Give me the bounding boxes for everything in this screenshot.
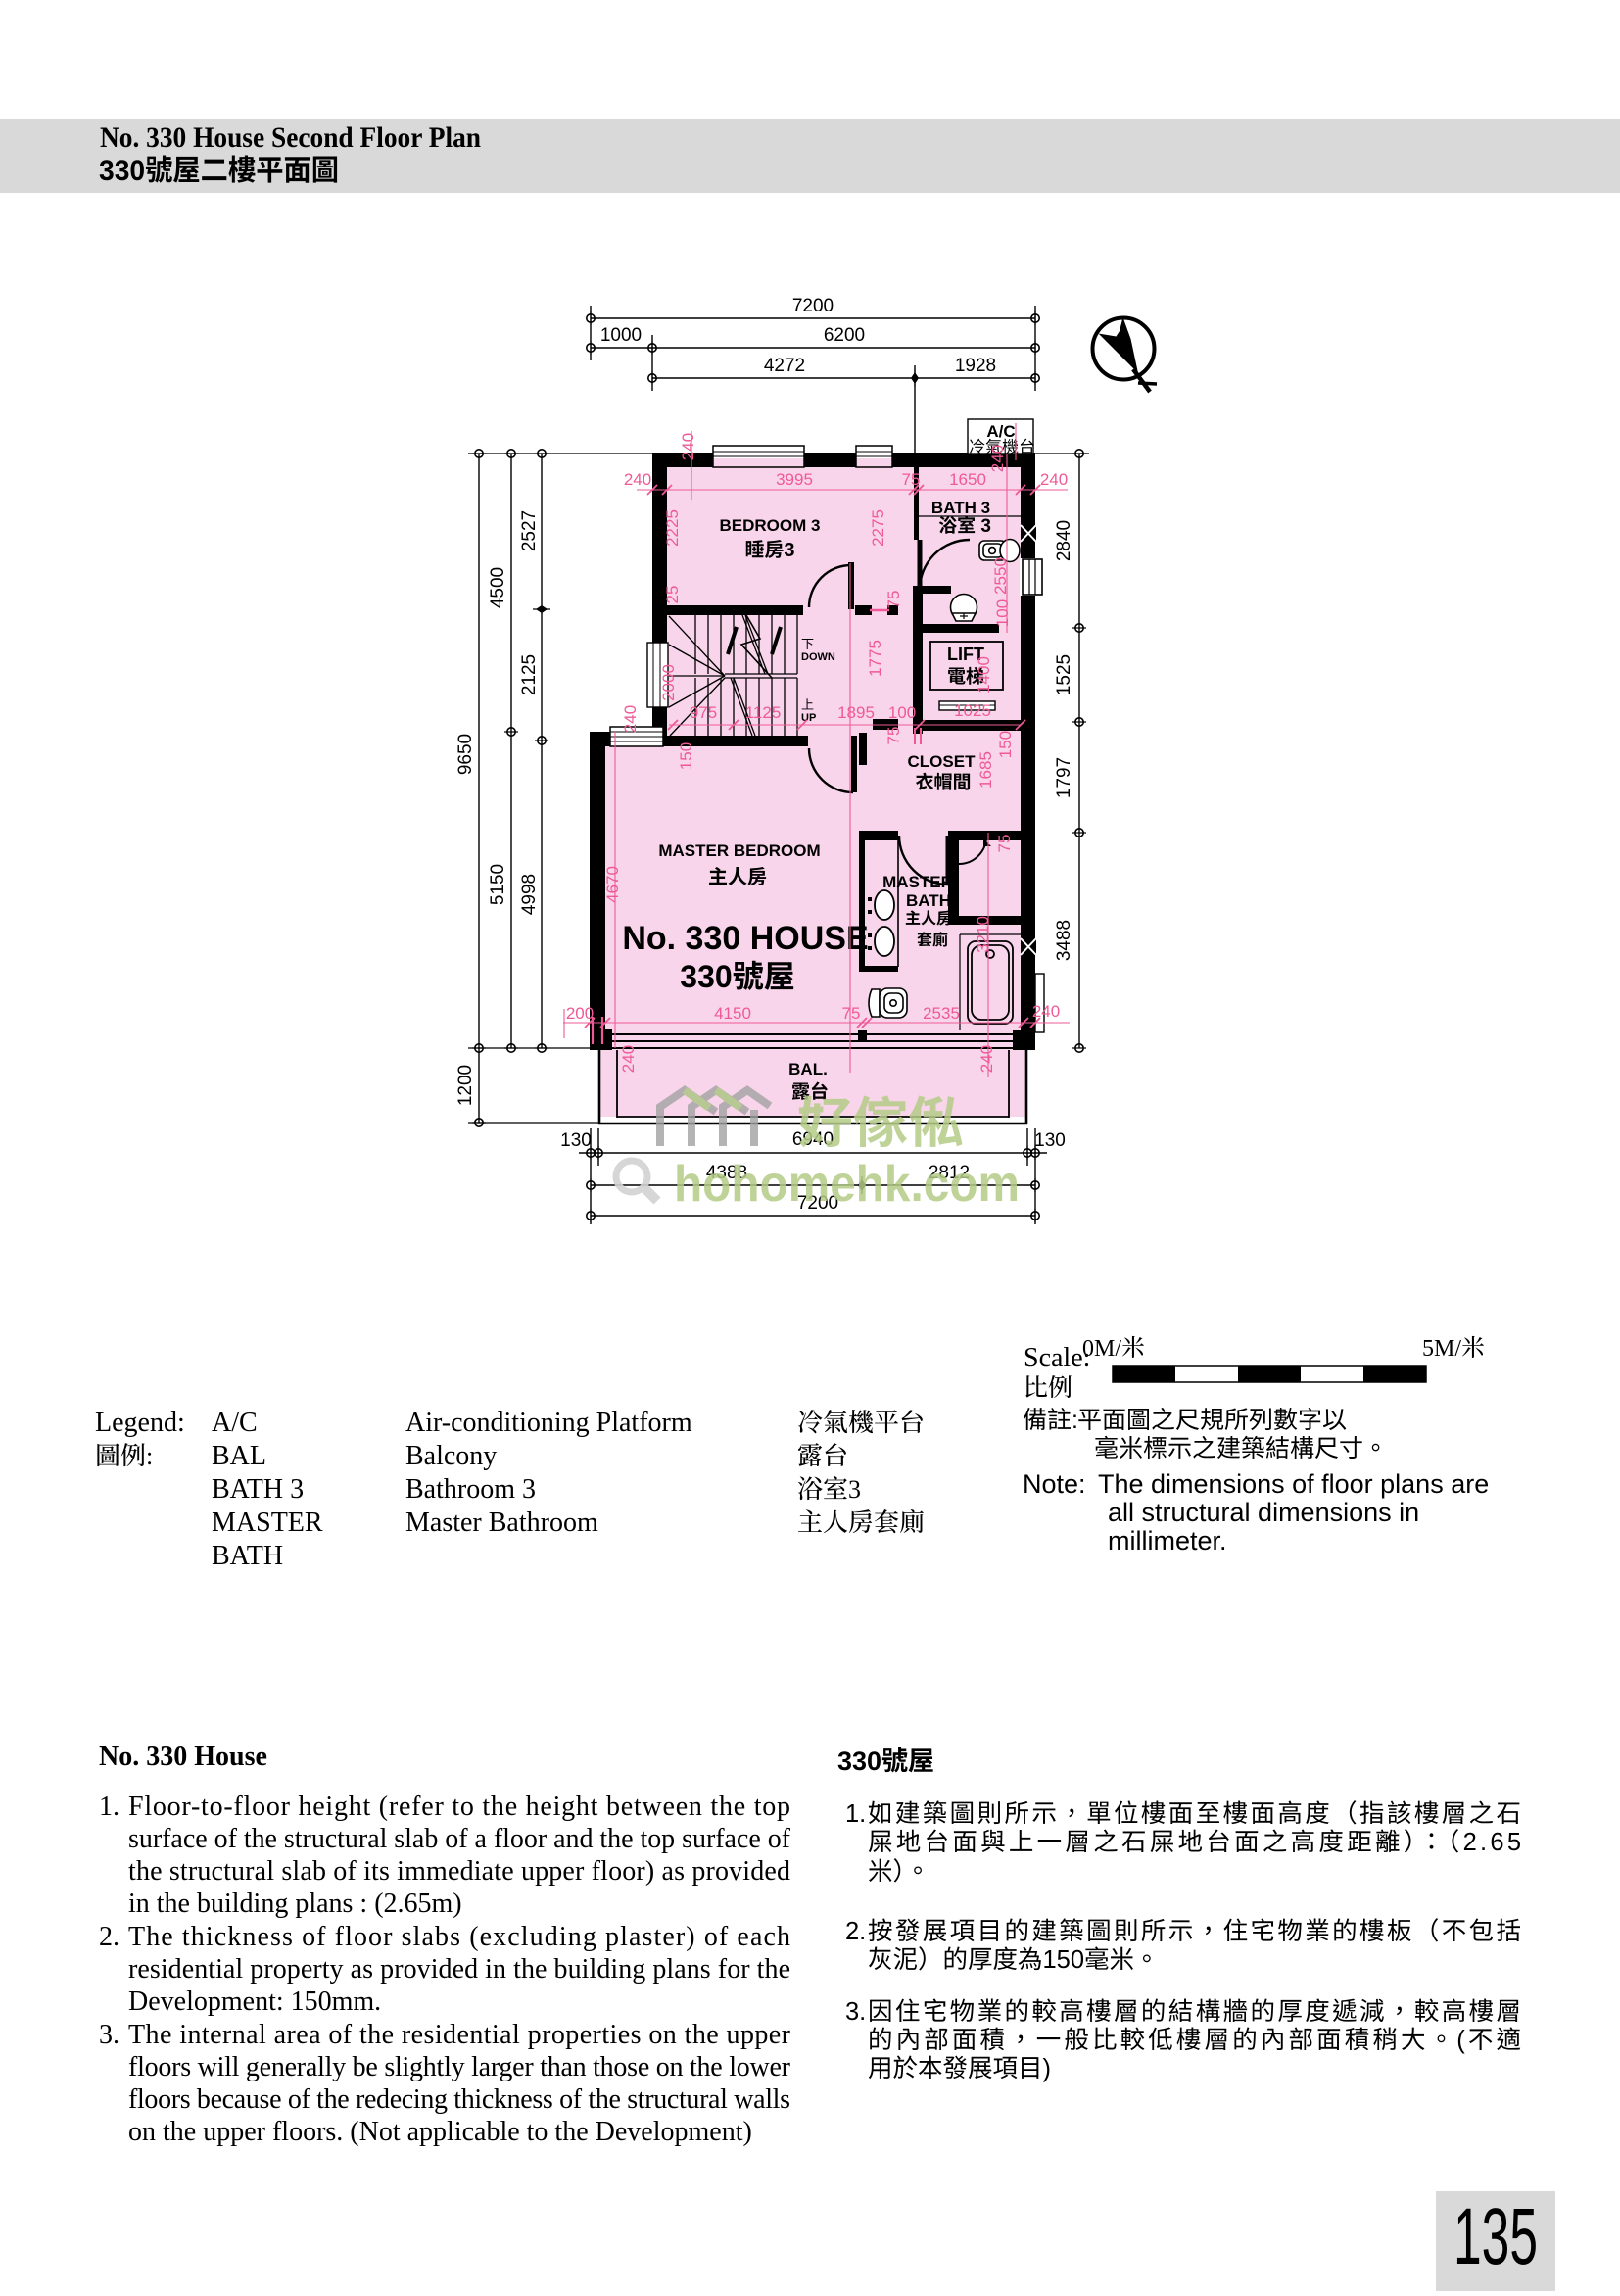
svg-text:MASTER: MASTER <box>882 873 953 891</box>
svg-text:5M/米: 5M/米 <box>1422 1335 1485 1362</box>
svg-text:1775: 1775 <box>866 640 884 677</box>
svg-text:4272: 4272 <box>764 356 805 376</box>
svg-text:floors because of the redecing: floors because of the redecing thickness… <box>128 2084 790 2115</box>
svg-text:0M/米: 0M/米 <box>1082 1335 1145 1362</box>
svg-text:1.: 1. <box>99 1792 119 1822</box>
svg-text:in the building plans : (2.65m: in the building plans : (2.65m) <box>128 1889 462 1919</box>
svg-text:1928: 1928 <box>955 356 996 376</box>
svg-text:MASTER BEDROOM: MASTER BEDROOM <box>658 841 820 860</box>
svg-text:2.: 2. <box>845 1918 866 1945</box>
svg-text:BAL: BAL <box>212 1441 266 1471</box>
svg-text:平面圖之尺規所列數字以: 平面圖之尺規所列數字以 <box>1077 1407 1347 1434</box>
svg-text:屎地台面與上一層之石屎地台面之高度距離）：（2.65: 屎地台面與上一層之石屎地台面之高度距離）：（2.65 <box>868 1829 1521 1856</box>
svg-text:BAL.: BAL. <box>788 1060 828 1078</box>
svg-text:UP: UP <box>801 712 816 724</box>
svg-text:75: 75 <box>902 470 921 489</box>
svg-text:2535: 2535 <box>923 1004 960 1023</box>
svg-text:主人房: 主人房 <box>905 910 952 928</box>
svg-text:BATH: BATH <box>212 1541 283 1571</box>
svg-text:BATH 3: BATH 3 <box>931 499 990 517</box>
svg-text:浴室3: 浴室3 <box>797 1475 861 1504</box>
svg-text:150: 150 <box>996 731 1015 758</box>
svg-text:the structural slab of its imm: the structural slab of its immediate upp… <box>128 1856 790 1887</box>
svg-text:的內部面積，一般比較低樓層的內部面積稍大。(不適: 的內部面積，一般比較低樓層的內部面積稍大。(不適 <box>868 2027 1521 2054</box>
svg-text:套廁: 套廁 <box>917 932 948 949</box>
svg-text:3488: 3488 <box>1054 920 1074 961</box>
svg-text:圖例:: 圖例: <box>95 1442 153 1470</box>
svg-text:浴室 3: 浴室 3 <box>938 515 991 537</box>
svg-text:Scale:: Scale: <box>1024 1343 1090 1373</box>
svg-text:1025: 1025 <box>954 701 991 720</box>
svg-text:1.: 1. <box>845 1800 866 1828</box>
svg-text:240: 240 <box>679 433 697 460</box>
svg-text:主人房套廁: 主人房套廁 <box>797 1508 925 1537</box>
svg-text:3.: 3. <box>99 2020 119 2050</box>
svg-text:冷氣機平台: 冷氣機平台 <box>797 1409 925 1437</box>
svg-text:上: 上 <box>801 697 814 712</box>
svg-text:240: 240 <box>1040 470 1068 489</box>
svg-text:3.: 3. <box>845 1998 866 2026</box>
svg-text:330號屋二樓平面圖: 330號屋二樓平面圖 <box>99 155 339 187</box>
svg-text:Balcony: Balcony <box>405 1441 497 1471</box>
svg-text:1895: 1895 <box>837 703 875 722</box>
svg-text:floors will generally be sligh: floors will generally be slightly larger… <box>128 2052 791 2082</box>
svg-text:CLOSET: CLOSET <box>908 752 977 771</box>
svg-text:睡房3: 睡房3 <box>744 540 794 561</box>
svg-text:135: 135 <box>1453 2192 1538 2281</box>
svg-text:DOWN: DOWN <box>801 651 835 663</box>
svg-text:hohomehk.com: hohomehk.com <box>674 1156 1020 1213</box>
svg-text:millimeter.: millimeter. <box>1108 1526 1227 1555</box>
svg-text:330號屋: 330號屋 <box>680 959 794 994</box>
svg-text:衣帽間: 衣帽間 <box>915 772 971 793</box>
svg-text:2125: 2125 <box>519 654 540 695</box>
svg-text:用於本發展項目): 用於本發展項目) <box>868 2055 1051 2082</box>
svg-text:備註:: 備註: <box>1023 1407 1078 1434</box>
svg-text:好傢俬: 好傢俬 <box>797 1092 964 1154</box>
svg-text:1525: 1525 <box>1054 654 1074 695</box>
svg-text:3995: 3995 <box>776 470 813 489</box>
svg-text:surface of the structural slab: surface of the structural slab of a floo… <box>128 1824 791 1854</box>
svg-text:Air-conditioning Platform: Air-conditioning Platform <box>405 1408 692 1438</box>
svg-text:1000: 1000 <box>600 325 642 346</box>
svg-text:1650: 1650 <box>949 470 986 489</box>
svg-text:130: 130 <box>560 1130 592 1151</box>
svg-text:2000: 2000 <box>659 664 678 701</box>
svg-text:240: 240 <box>619 1045 638 1073</box>
svg-text:A/C: A/C <box>212 1408 258 1438</box>
svg-text:1125: 1125 <box>745 703 782 722</box>
svg-text:2840: 2840 <box>1054 520 1074 561</box>
svg-text:6200: 6200 <box>824 325 865 346</box>
svg-text:100: 100 <box>888 703 916 722</box>
svg-text:Note:: Note: <box>1023 1469 1086 1499</box>
svg-text:130: 130 <box>1034 1130 1066 1151</box>
svg-text:240: 240 <box>624 470 651 489</box>
svg-text:Master Bathroom: Master Bathroom <box>405 1507 598 1538</box>
svg-text:200: 200 <box>566 1004 594 1023</box>
svg-text:75: 75 <box>884 591 903 609</box>
svg-text:240: 240 <box>977 1045 996 1073</box>
svg-text:75: 75 <box>995 835 1014 853</box>
svg-text:2225: 2225 <box>663 509 682 547</box>
svg-text:BEDROOM 3: BEDROOM 3 <box>720 516 821 535</box>
svg-text:米）。: 米）。 <box>868 1858 930 1886</box>
svg-text:150: 150 <box>677 742 695 770</box>
svg-text:The thickness of floor slabs (: The thickness of floor slabs (excluding … <box>128 1922 790 1952</box>
svg-text:2275: 2275 <box>869 509 887 547</box>
svg-text:Floor-to-floor height (refer t: Floor-to-floor height (refer to the heig… <box>128 1792 790 1822</box>
svg-text:975: 975 <box>690 703 717 722</box>
svg-text:Legend:: Legend: <box>95 1408 185 1438</box>
svg-text:75: 75 <box>842 1004 861 1023</box>
svg-text:MASTER: MASTER <box>212 1507 323 1538</box>
svg-text:No. 330 House Second Floor Pla: No. 330 House Second Floor Plan <box>100 121 481 154</box>
svg-text:5150: 5150 <box>488 864 508 905</box>
svg-text:Development: 150mm.: Development: 150mm. <box>128 1986 381 2017</box>
svg-text:主人房: 主人房 <box>708 866 767 888</box>
svg-text:330號屋: 330號屋 <box>837 1746 934 1776</box>
svg-text:4998: 4998 <box>519 874 540 915</box>
svg-text:240: 240 <box>988 445 1007 472</box>
svg-text:all structural dimensions in: all structural dimensions in <box>1108 1498 1419 1527</box>
svg-text:4670: 4670 <box>603 866 622 903</box>
svg-text:下: 下 <box>801 637 814 651</box>
svg-text:4500: 4500 <box>488 567 508 608</box>
svg-text:BATH 3: BATH 3 <box>212 1474 304 1505</box>
svg-text:25: 25 <box>663 586 682 604</box>
svg-text:1685: 1685 <box>977 751 995 789</box>
svg-text:No. 330 House: No. 330 House <box>99 1742 267 1772</box>
svg-text:240: 240 <box>1032 1002 1060 1021</box>
svg-text:BATH: BATH <box>906 891 951 910</box>
svg-text:灰泥）的厚度為150毫米。: 灰泥）的厚度為150毫米。 <box>868 1946 1160 1974</box>
svg-text:3210: 3210 <box>974 916 992 953</box>
svg-text:2550: 2550 <box>991 557 1010 595</box>
svg-text:residential property as provi: residential property as provided in the … <box>128 1954 790 1985</box>
svg-text:The dimensions of floor plans: The dimensions of floor plans are <box>1098 1469 1489 1499</box>
svg-text:240: 240 <box>621 705 640 733</box>
svg-text:4150: 4150 <box>714 1004 751 1023</box>
svg-text:on the upper floors. (Not appl: on the upper floors. (Not applicable to … <box>128 2117 752 2147</box>
svg-text:75: 75 <box>884 727 903 745</box>
svg-text:露台: 露台 <box>797 1442 848 1470</box>
svg-text:9650: 9650 <box>455 734 476 775</box>
svg-text:100: 100 <box>993 599 1012 627</box>
svg-text:2.: 2. <box>99 1922 119 1952</box>
svg-text:2527: 2527 <box>519 510 540 551</box>
svg-text:7200: 7200 <box>792 296 834 316</box>
svg-text:No. 330 HOUSE: No. 330 HOUSE <box>622 920 868 957</box>
svg-text:1797: 1797 <box>1054 757 1074 798</box>
svg-text:1200: 1200 <box>455 1065 476 1106</box>
svg-text:毫米標示之建築結構尺寸。: 毫米標示之建築結構尺寸。 <box>1094 1435 1388 1462</box>
svg-text:比例: 比例 <box>1024 1374 1072 1402</box>
svg-text:1400: 1400 <box>975 656 993 694</box>
svg-text:Bathroom 3: Bathroom 3 <box>405 1474 536 1505</box>
svg-text:The internal area of the resid: The internal area of the residential pro… <box>128 2020 791 2050</box>
